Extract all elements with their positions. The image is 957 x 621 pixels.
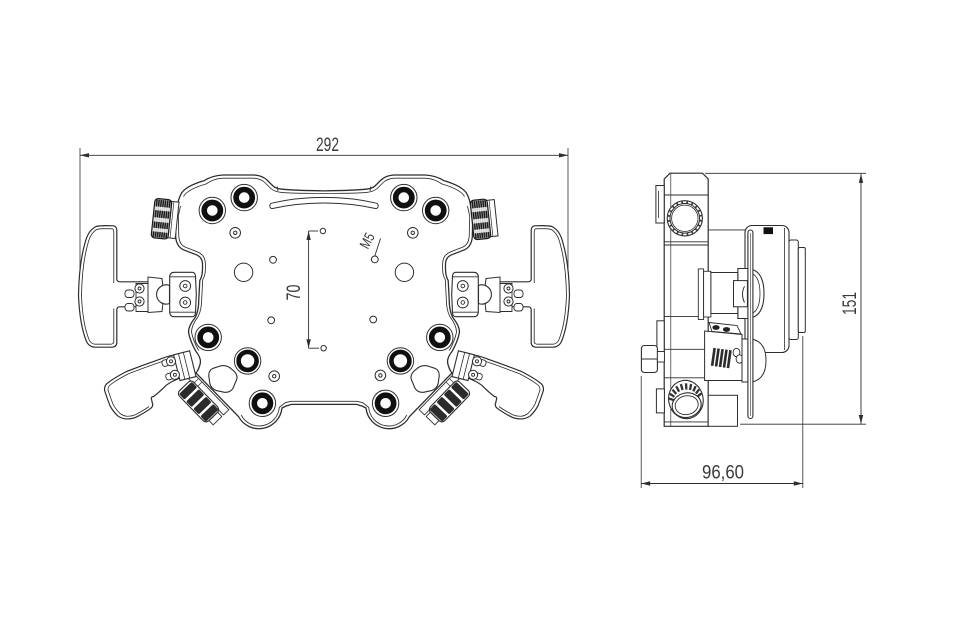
svg-text:70: 70 xyxy=(284,285,305,301)
svg-text:96,60: 96,60 xyxy=(702,463,744,484)
svg-text:151: 151 xyxy=(840,292,861,315)
svg-text:292: 292 xyxy=(316,135,339,156)
